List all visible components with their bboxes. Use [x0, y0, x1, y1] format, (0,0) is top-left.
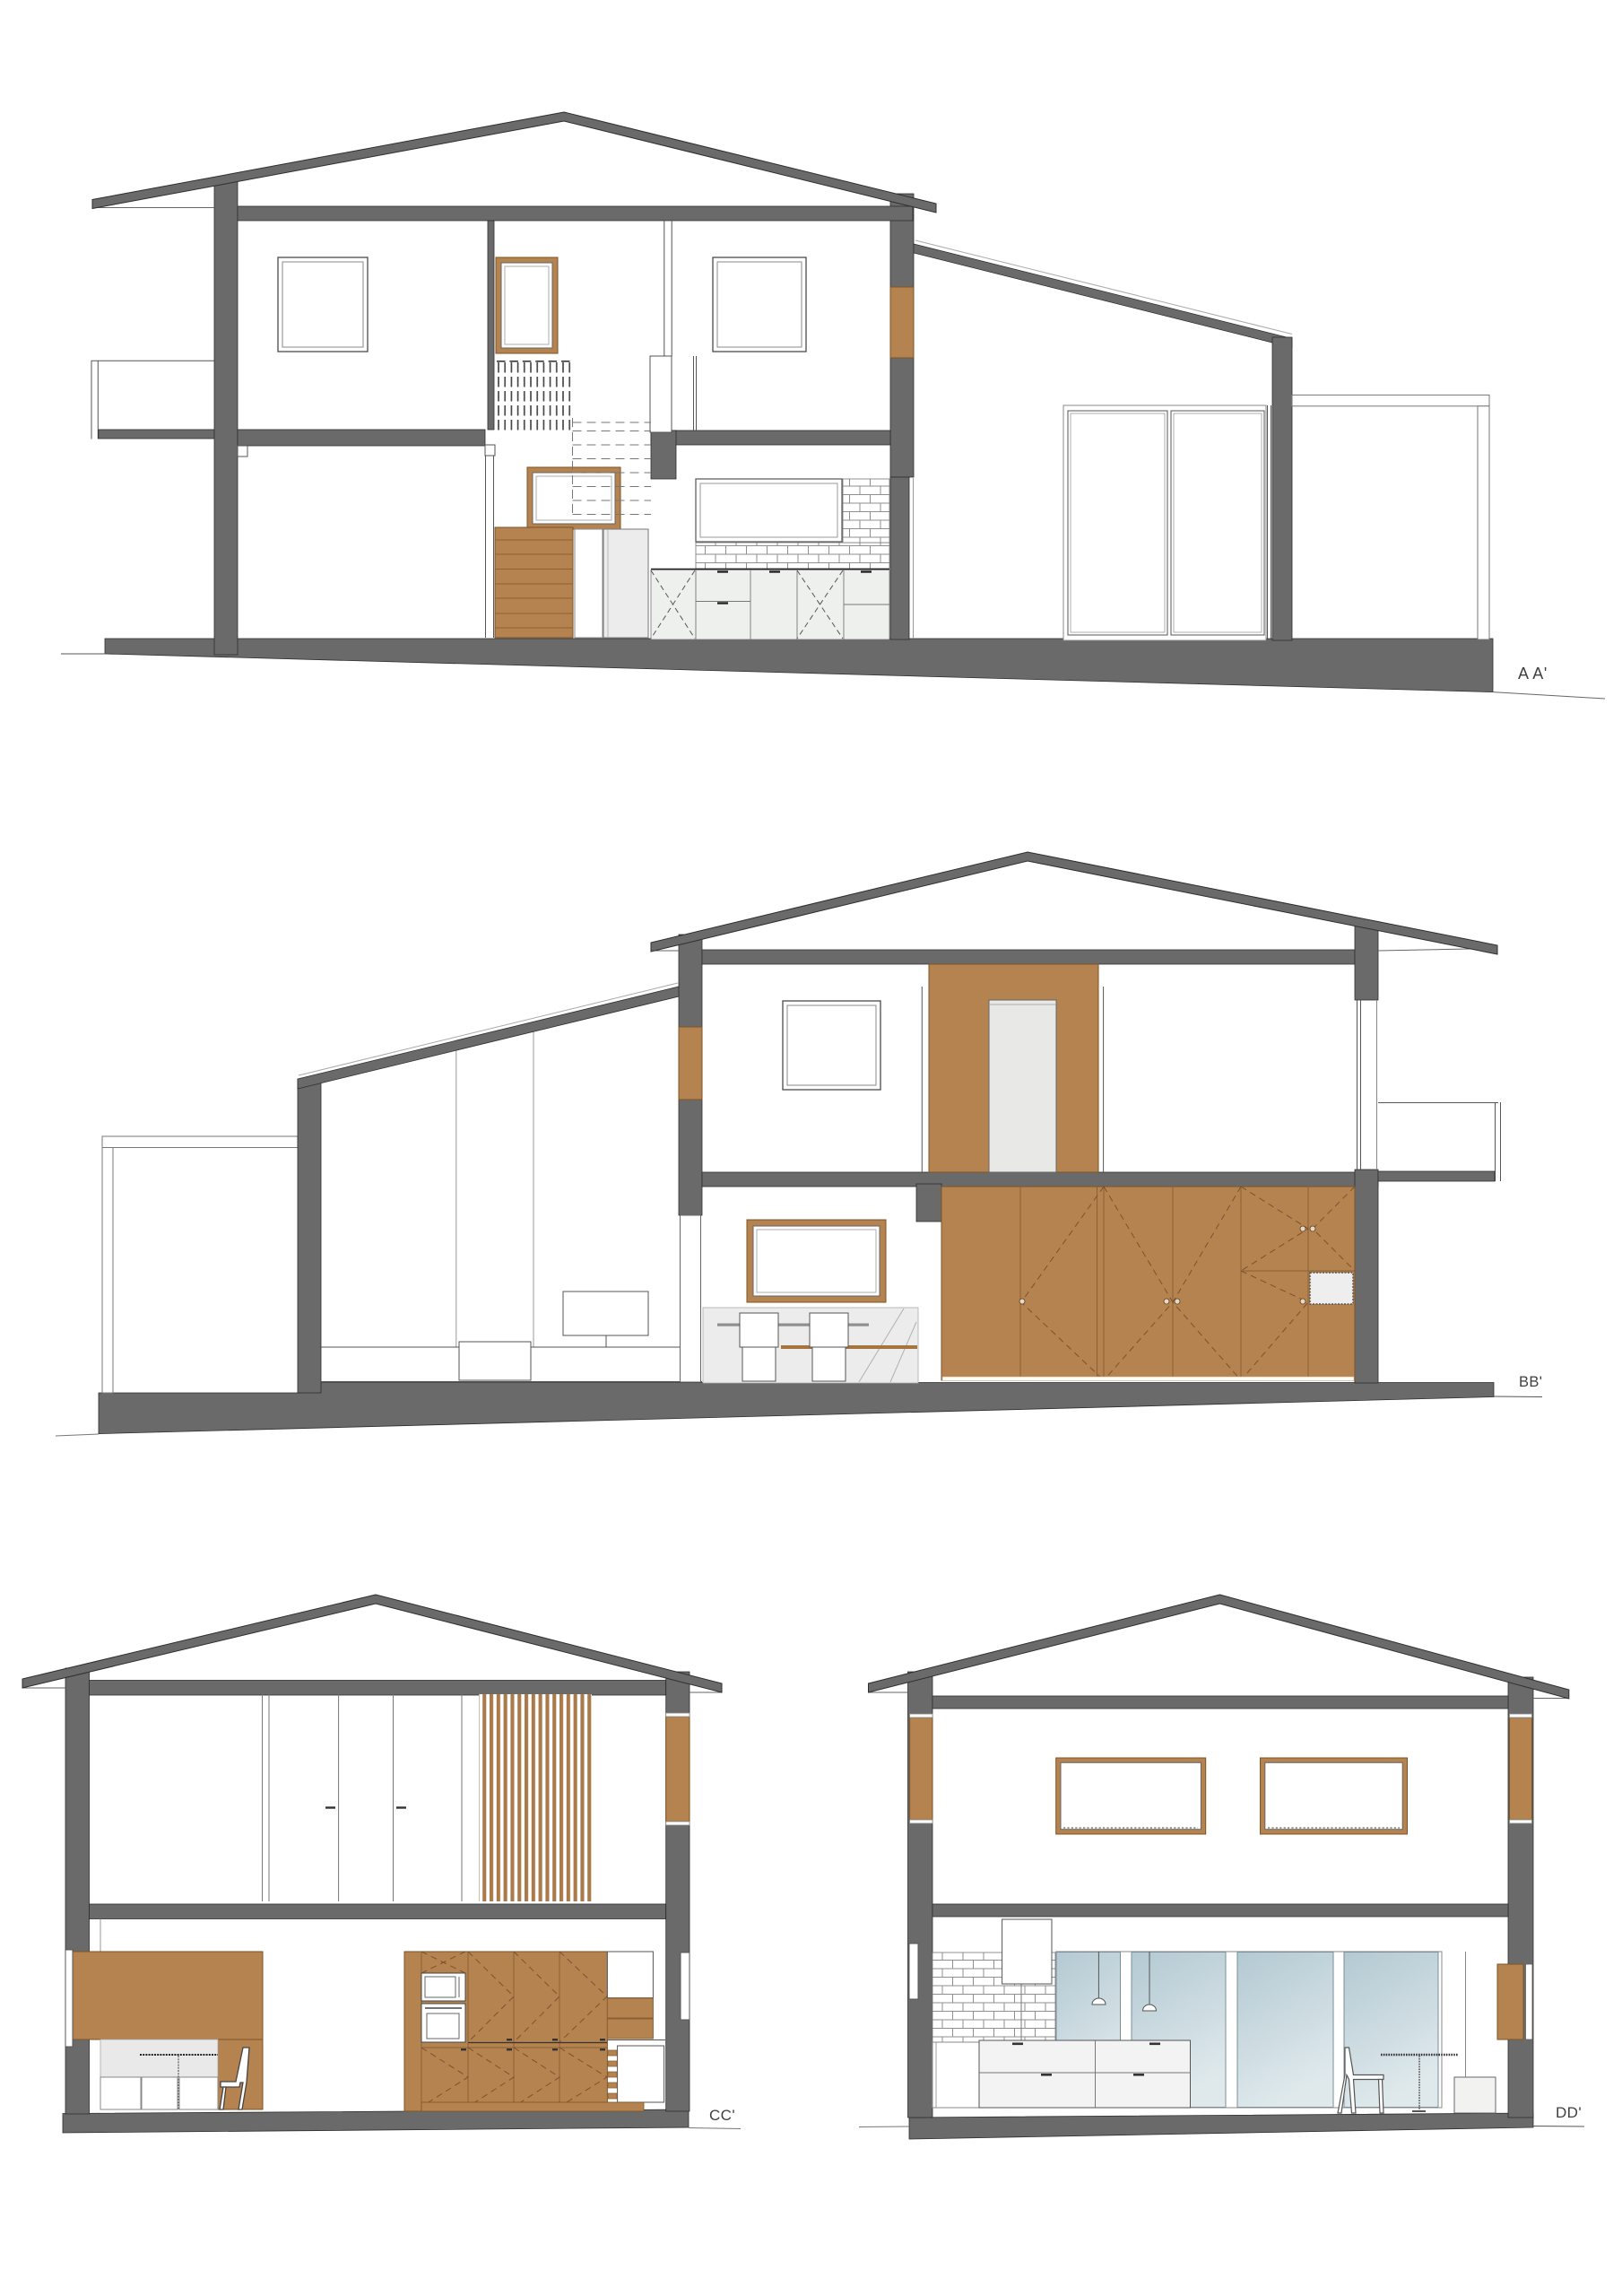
svg-text:BB': BB' [1519, 1374, 1542, 1390]
svg-text:A A': A A' [1518, 665, 1548, 683]
svg-text:CC': CC' [709, 2107, 735, 2124]
svg-text:DD': DD' [1556, 2104, 1582, 2121]
